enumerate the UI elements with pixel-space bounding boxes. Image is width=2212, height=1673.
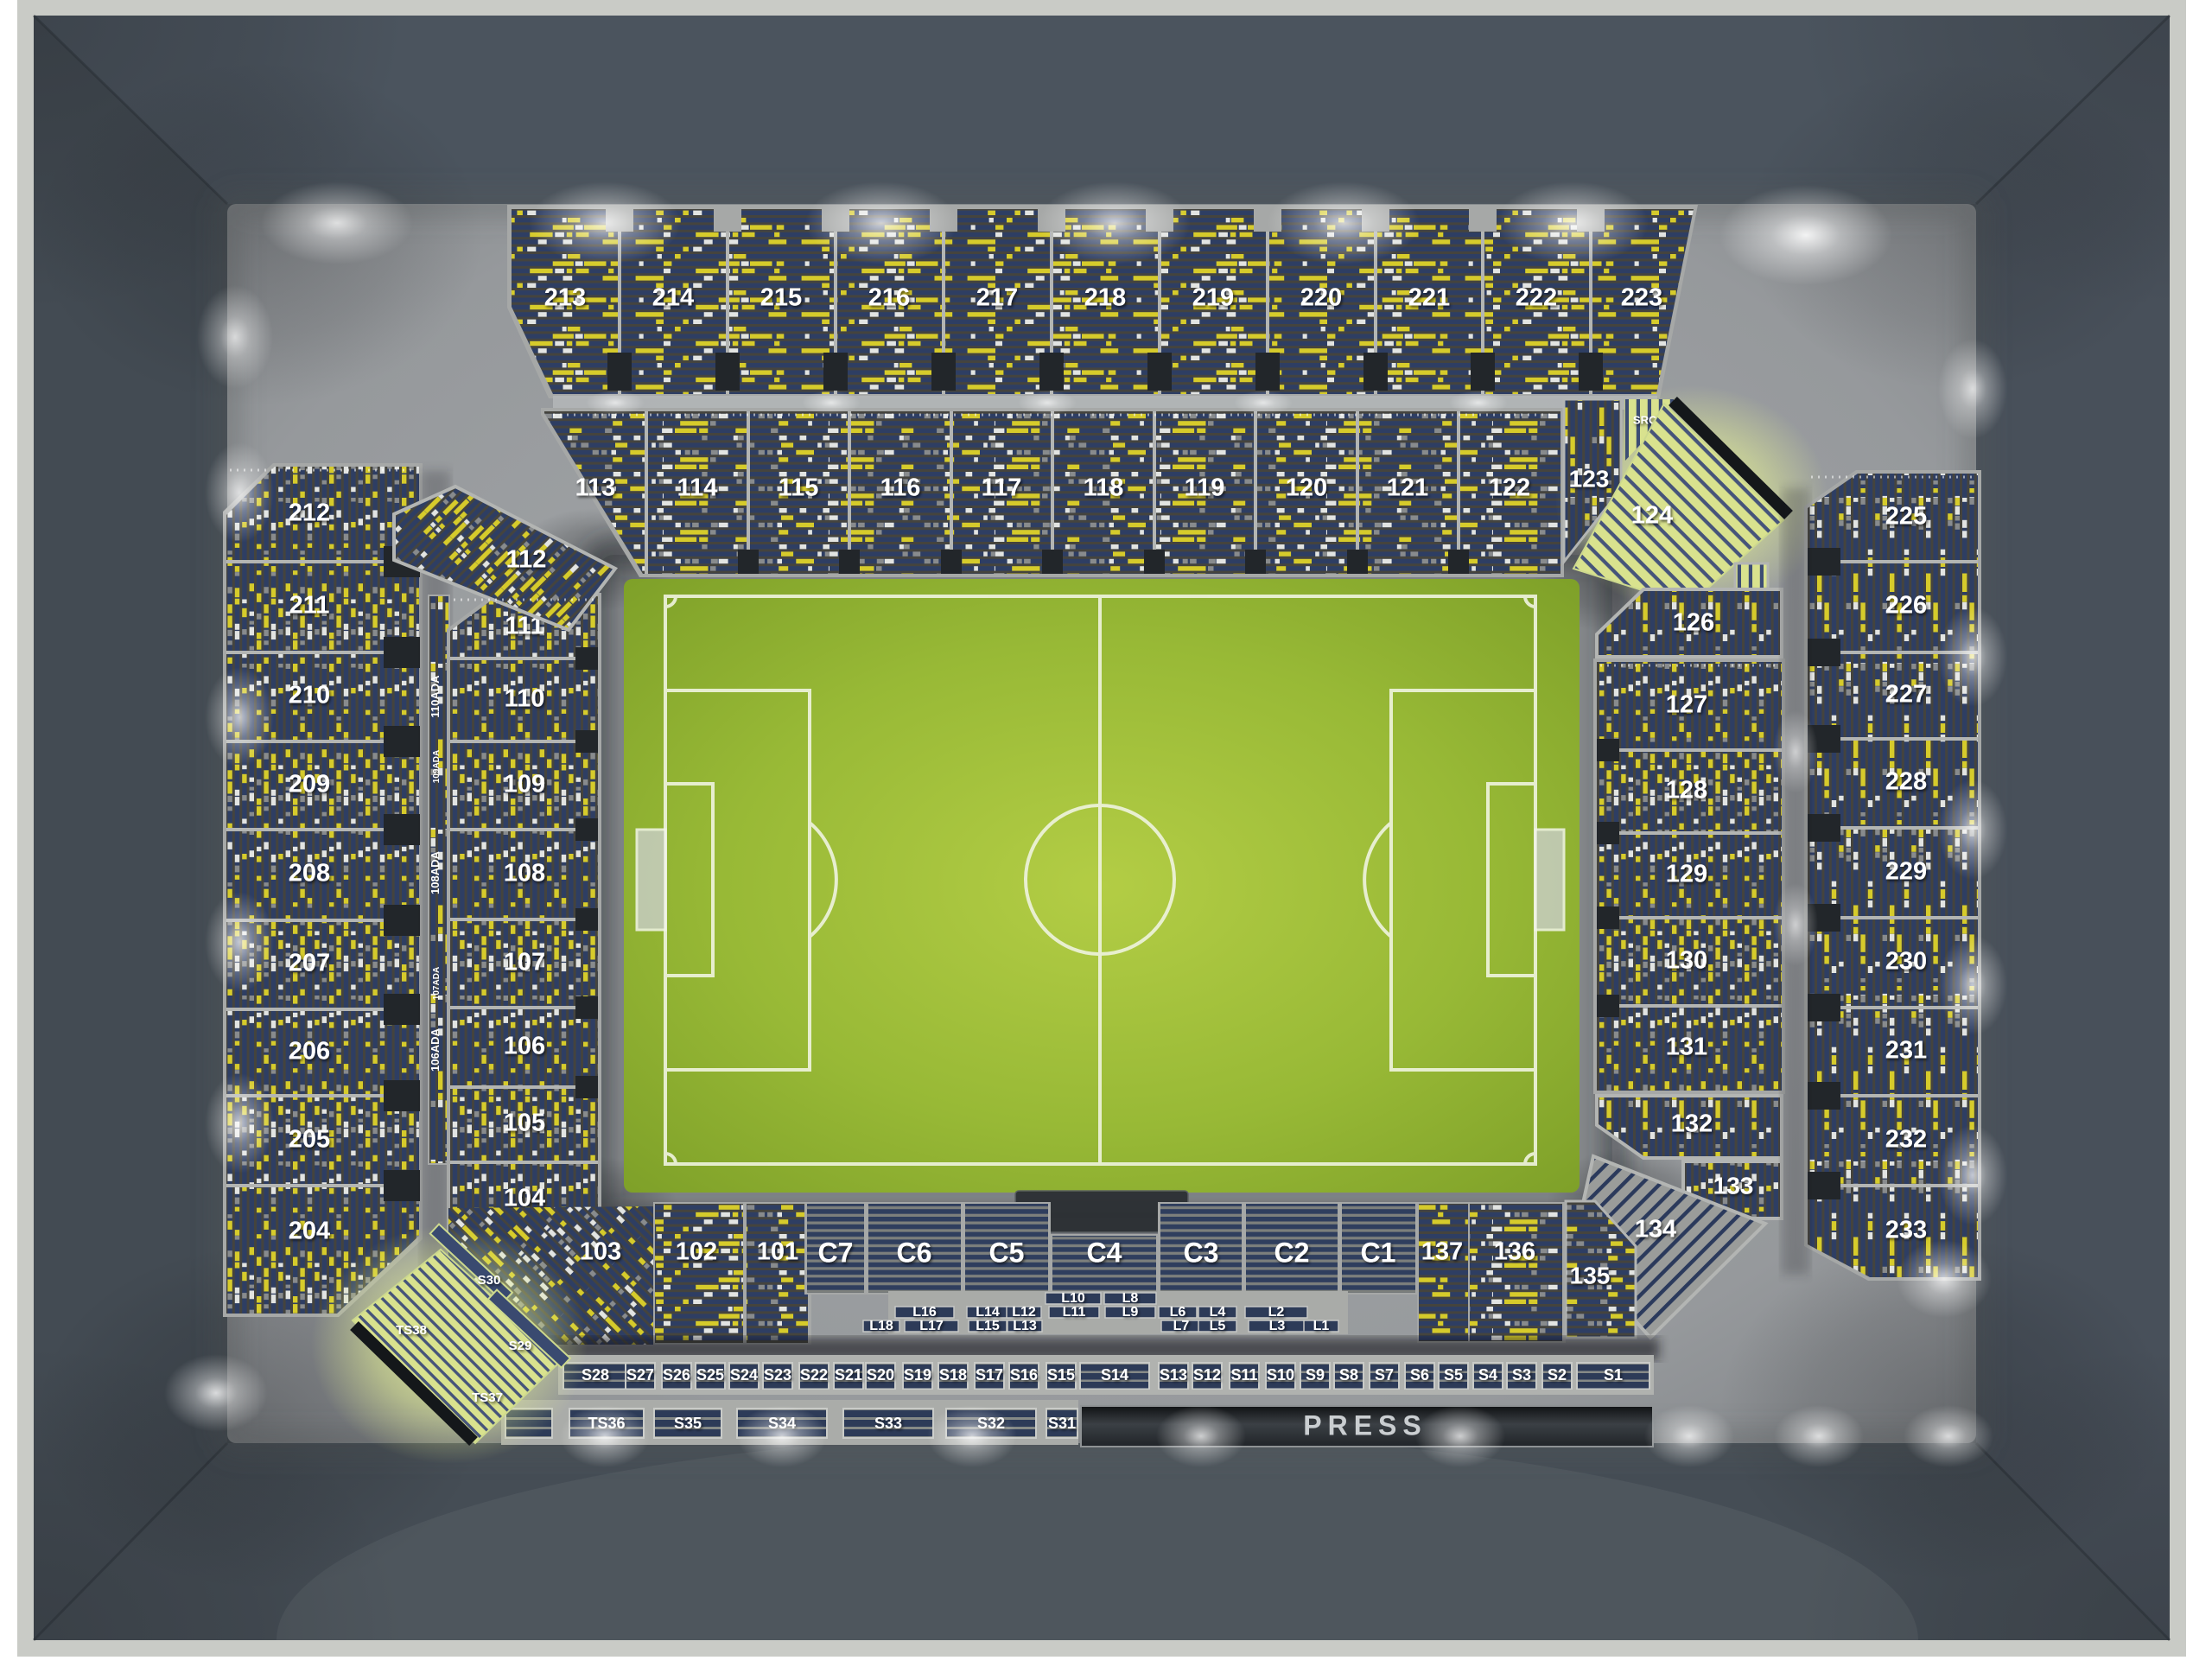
- svg-text:225: 225: [1885, 503, 1927, 531]
- svg-text:S31: S31: [1048, 1415, 1076, 1432]
- svg-text:L16: L16: [912, 1305, 937, 1320]
- svg-text:208: 208: [289, 860, 330, 887]
- svg-text:106: 106: [504, 1033, 545, 1060]
- svg-text:220: 220: [1300, 284, 1342, 312]
- svg-text:218: 218: [1084, 284, 1126, 312]
- svg-text:L10: L10: [1061, 1291, 1085, 1306]
- svg-text:L13: L13: [1013, 1319, 1037, 1333]
- svg-text:112: 112: [506, 546, 547, 574]
- svg-text:109ADA: 109ADA: [432, 750, 442, 783]
- svg-text:114: 114: [677, 474, 718, 502]
- svg-text:216: 216: [868, 284, 910, 312]
- svg-text:134: 134: [1635, 1216, 1676, 1244]
- svg-text:S28: S28: [582, 1366, 609, 1384]
- svg-text:105: 105: [504, 1110, 545, 1137]
- svg-text:101: 101: [757, 1238, 798, 1266]
- svg-text:222: 222: [1516, 284, 1557, 312]
- svg-text:232: 232: [1885, 1126, 1927, 1154]
- svg-text:S10: S10: [1267, 1366, 1294, 1384]
- svg-text:PRESS: PRESS: [1303, 1409, 1427, 1441]
- svg-text:113: 113: [575, 474, 616, 502]
- svg-text:107ADA: 107ADA: [432, 967, 442, 1000]
- svg-text:L7: L7: [1173, 1319, 1190, 1333]
- svg-text:120: 120: [1286, 474, 1327, 502]
- svg-text:S20: S20: [867, 1366, 894, 1384]
- svg-text:S30: S30: [478, 1273, 501, 1288]
- svg-text:211: 211: [289, 592, 330, 620]
- svg-text:217: 217: [976, 284, 1018, 312]
- svg-text:S9: S9: [1306, 1366, 1325, 1384]
- svg-text:S13: S13: [1160, 1366, 1187, 1384]
- svg-text:126: 126: [1673, 609, 1714, 637]
- svg-text:106ADA: 106ADA: [429, 1027, 442, 1071]
- svg-text:133: 133: [1713, 1172, 1754, 1199]
- svg-text:128: 128: [1666, 777, 1707, 805]
- svg-text:S15: S15: [1047, 1366, 1075, 1384]
- svg-text:228: 228: [1885, 768, 1927, 796]
- svg-text:L5: L5: [1210, 1319, 1226, 1333]
- svg-text:129: 129: [1666, 861, 1707, 888]
- svg-text:103: 103: [580, 1238, 621, 1266]
- svg-text:233: 233: [1885, 1217, 1927, 1244]
- svg-text:L2: L2: [1268, 1305, 1285, 1320]
- svg-text:132: 132: [1671, 1110, 1713, 1138]
- svg-text:205: 205: [289, 1126, 330, 1154]
- svg-text:213: 213: [544, 284, 586, 312]
- svg-text:S25: S25: [696, 1366, 724, 1384]
- svg-text:231: 231: [1885, 1037, 1927, 1065]
- svg-text:117: 117: [982, 474, 1022, 502]
- svg-text:S7: S7: [1375, 1366, 1394, 1384]
- svg-text:135: 135: [1570, 1262, 1611, 1288]
- svg-text:137: 137: [1421, 1238, 1463, 1266]
- svg-text:S23: S23: [764, 1366, 791, 1384]
- svg-text:L1: L1: [1313, 1319, 1330, 1333]
- svg-text:102: 102: [676, 1238, 717, 1266]
- svg-text:S8: S8: [1339, 1366, 1358, 1384]
- svg-text:L8: L8: [1122, 1291, 1139, 1306]
- svg-text:S35: S35: [674, 1415, 702, 1432]
- svg-text:S24: S24: [730, 1366, 758, 1384]
- svg-text:226: 226: [1885, 592, 1927, 620]
- svg-text:L4: L4: [1210, 1305, 1226, 1320]
- svg-text:S17: S17: [976, 1366, 1003, 1384]
- svg-text:TS38: TS38: [396, 1323, 427, 1338]
- svg-text:L14: L14: [976, 1305, 1000, 1320]
- svg-text:219: 219: [1192, 284, 1234, 312]
- svg-text:130: 130: [1666, 947, 1707, 975]
- svg-text:123: 123: [1569, 465, 1610, 492]
- svg-text:207: 207: [289, 950, 330, 977]
- svg-text:110: 110: [505, 685, 545, 713]
- svg-text:S1: S1: [1604, 1366, 1623, 1384]
- svg-text:124: 124: [1631, 502, 1673, 530]
- svg-text:131: 131: [1666, 1034, 1707, 1061]
- svg-text:227: 227: [1885, 681, 1927, 709]
- svg-text:C7: C7: [818, 1237, 854, 1268]
- svg-text:S26: S26: [663, 1366, 690, 1384]
- svg-text:118: 118: [1084, 474, 1124, 502]
- svg-text:107: 107: [504, 949, 545, 976]
- svg-text:S19: S19: [904, 1366, 931, 1384]
- svg-text:209: 209: [289, 771, 330, 798]
- svg-text:S16: S16: [1010, 1366, 1038, 1384]
- svg-text:S6: S6: [1410, 1366, 1429, 1384]
- svg-text:S33: S33: [874, 1415, 902, 1432]
- svg-text:121: 121: [1387, 474, 1428, 502]
- svg-text:L3: L3: [1269, 1319, 1286, 1333]
- svg-text:229: 229: [1885, 858, 1927, 886]
- svg-text:TS37: TS37: [472, 1390, 503, 1405]
- svg-text:C4: C4: [1087, 1237, 1122, 1268]
- svg-text:S14: S14: [1101, 1366, 1128, 1384]
- svg-text:S5: S5: [1444, 1366, 1463, 1384]
- svg-text:122: 122: [1489, 474, 1530, 502]
- svg-text:210: 210: [289, 682, 330, 709]
- svg-text:C6: C6: [897, 1237, 932, 1268]
- svg-text:230: 230: [1885, 948, 1927, 976]
- svg-text:S29: S29: [509, 1339, 532, 1353]
- svg-text:221: 221: [1408, 284, 1450, 312]
- svg-text:116: 116: [880, 474, 921, 502]
- svg-text:C2: C2: [1274, 1237, 1310, 1268]
- svg-text:L6: L6: [1170, 1305, 1186, 1320]
- svg-text:S22: S22: [800, 1366, 828, 1384]
- svg-text:136: 136: [1494, 1238, 1535, 1266]
- svg-text:223: 223: [1621, 284, 1662, 312]
- svg-text:204: 204: [289, 1218, 330, 1245]
- svg-text:C3: C3: [1184, 1237, 1219, 1268]
- svg-text:L11: L11: [1063, 1305, 1086, 1320]
- svg-text:S2: S2: [1548, 1366, 1567, 1384]
- svg-text:214: 214: [652, 284, 694, 312]
- svg-text:L12: L12: [1012, 1305, 1036, 1320]
- svg-text:L9: L9: [1122, 1305, 1139, 1320]
- svg-text:108: 108: [504, 860, 545, 887]
- svg-text:206: 206: [289, 1038, 330, 1066]
- svg-text:S3: S3: [1512, 1366, 1531, 1384]
- svg-text:215: 215: [760, 284, 802, 312]
- svg-text:109: 109: [504, 771, 545, 798]
- svg-text:S27: S27: [626, 1366, 654, 1384]
- svg-text:S18: S18: [939, 1366, 967, 1384]
- svg-text:110ADA: 110ADA: [429, 675, 442, 718]
- svg-text:L15: L15: [976, 1319, 1000, 1333]
- svg-text:C1: C1: [1361, 1237, 1396, 1268]
- svg-text:212: 212: [289, 499, 330, 527]
- svg-text:S21: S21: [835, 1366, 862, 1384]
- svg-text:S4: S4: [1478, 1366, 1497, 1384]
- svg-text:L17: L17: [919, 1319, 944, 1333]
- svg-text:119: 119: [1185, 474, 1225, 502]
- svg-text:127: 127: [1666, 691, 1707, 719]
- svg-text:C5: C5: [989, 1237, 1025, 1268]
- svg-text:S11: S11: [1230, 1366, 1257, 1384]
- svg-text:108ADA: 108ADA: [429, 850, 442, 894]
- svg-text:S12: S12: [1193, 1366, 1221, 1384]
- svg-text:115: 115: [779, 474, 819, 502]
- svg-text:L18: L18: [869, 1319, 893, 1333]
